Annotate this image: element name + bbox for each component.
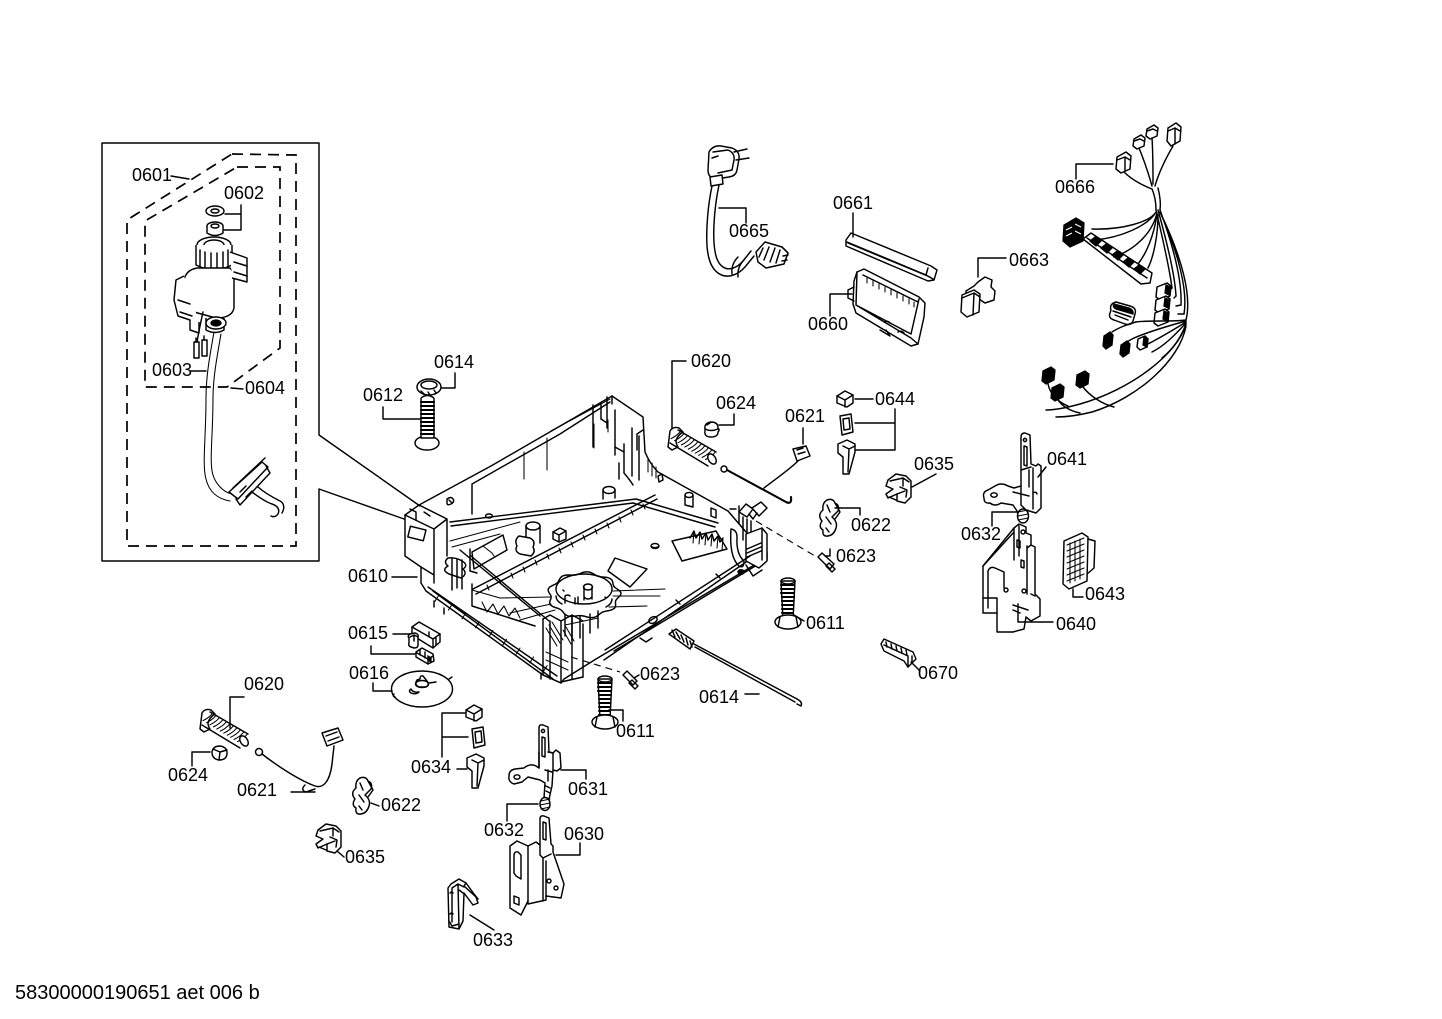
svg-text:0610: 0610 [348,566,388,586]
svg-text:0633: 0633 [473,930,513,950]
svg-text:0604: 0604 [245,378,285,398]
svg-text:0621: 0621 [785,406,825,426]
svg-text:0666: 0666 [1055,177,1095,197]
svg-text:0634: 0634 [411,757,451,777]
svg-text:0643: 0643 [1085,584,1125,604]
svg-text:0660: 0660 [808,314,848,334]
svg-text:0635: 0635 [914,454,954,474]
svg-text:0663: 0663 [1009,250,1049,270]
svg-text:0621: 0621 [237,780,277,800]
svg-text:0661: 0661 [833,193,873,213]
svg-text:0623: 0623 [640,664,680,684]
svg-text:58300000190651 aet 006 b: 58300000190651 aet 006 b [15,982,260,1004]
svg-text:0632: 0632 [484,820,524,840]
svg-text:0640: 0640 [1056,614,1096,634]
svg-text:0622: 0622 [381,795,421,815]
svg-text:0630: 0630 [564,824,604,844]
svg-text:0615: 0615 [348,623,388,643]
svg-text:0611: 0611 [616,721,655,741]
svg-text:0623: 0623 [836,546,876,566]
svg-text:0632: 0632 [961,524,1001,544]
svg-text:0614: 0614 [699,687,739,707]
svg-text:0665: 0665 [729,221,769,241]
svg-text:0624: 0624 [168,765,208,785]
svg-text:0620: 0620 [691,351,731,371]
svg-text:0601: 0601 [132,165,172,185]
svg-text:0624: 0624 [716,393,756,413]
svg-text:0611: 0611 [806,613,845,633]
svg-text:0635: 0635 [345,847,385,867]
svg-text:0603: 0603 [152,360,192,380]
svg-text:0631: 0631 [568,779,608,799]
svg-text:0614: 0614 [434,352,474,372]
svg-text:0612: 0612 [363,385,403,405]
svg-text:0641: 0641 [1047,449,1087,469]
svg-text:0616: 0616 [349,663,389,683]
svg-text:0622: 0622 [851,515,891,535]
svg-text:0602: 0602 [224,183,264,203]
svg-text:0620: 0620 [244,674,284,694]
svg-text:0670: 0670 [918,663,958,683]
svg-text:0644: 0644 [875,389,915,409]
